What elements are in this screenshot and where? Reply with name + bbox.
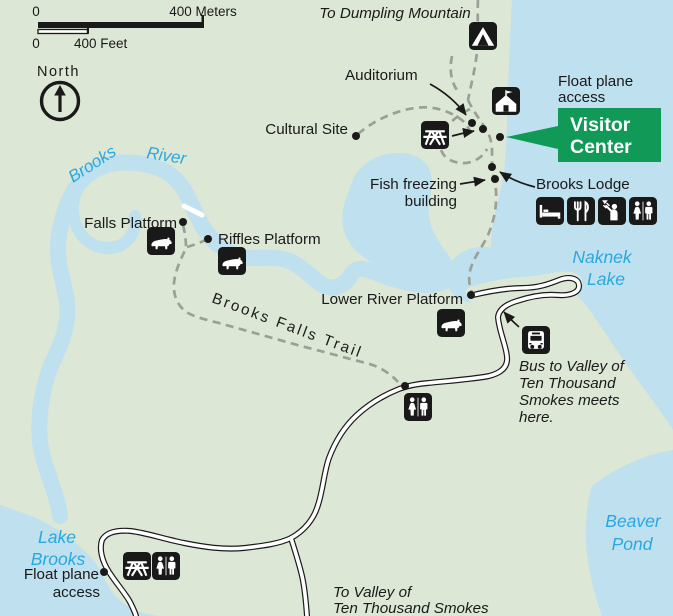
auditorium-label: Auditorium <box>345 67 418 84</box>
scale-feet-zero: 0 <box>32 36 40 51</box>
scale-meters-zero: 0 <box>32 4 40 19</box>
lower-river-platform-label: Lower River Platform <box>321 291 463 308</box>
lake-brooks-label-line2: Brooks <box>31 549 86 569</box>
float-plane-bottom-label-line2: access <box>53 584 101 601</box>
bus-note-line1: Bus to Valley of <box>519 358 626 375</box>
bus-icon <box>522 326 550 354</box>
scale-feet-tick <box>87 24 89 34</box>
lower-river-platform-dot <box>467 291 475 299</box>
campground-tent-icon <box>469 22 497 50</box>
restrooms-icon <box>629 197 657 225</box>
to-valley-label-line2: Ten Thousand Smokes <box>333 600 489 616</box>
picnic-table-icon-lake-brooks <box>123 552 151 580</box>
brooks-lodge-dot <box>488 163 496 171</box>
lake-brooks-label-line1: Lake <box>38 527 76 547</box>
bear-icon-lower-river <box>437 309 465 337</box>
scale-meters-bar <box>38 22 204 28</box>
park-map: Visitor Center To Dumpling Mountain Audi… <box>0 0 673 616</box>
fish-freezing-label-line1: Fish freezing <box>370 176 457 193</box>
scale-feet-bar <box>38 30 88 34</box>
naknek-lake-label-line2: Lake <box>587 269 625 289</box>
picnic-table-icon <box>421 121 449 149</box>
float-plane-top-label-line1: Float plane <box>558 73 633 90</box>
to-dumpling-mountain-label: To Dumpling Mountain <box>319 5 470 22</box>
bus-note-line2: Ten Thousand <box>519 375 616 392</box>
naknek-lake-label-line1: Naknek <box>572 247 633 267</box>
fish-freezing-label-line2: building <box>405 193 457 210</box>
ranger-station-icon <box>492 87 520 115</box>
map-canvas: Visitor Center To Dumpling Mountain Audi… <box>0 0 673 616</box>
bus-note-line4: here. <box>519 409 554 426</box>
bus-note-line3: Smokes meets <box>519 392 620 409</box>
riffles-platform-label: Riffles Platform <box>218 231 321 248</box>
scale-meters-tick <box>202 15 205 28</box>
road-restrooms-dot <box>401 382 409 390</box>
north-label: North <box>37 64 80 80</box>
bear-icon-riffles <box>218 247 246 275</box>
falls-platform-dot <box>179 218 187 226</box>
visitor-center-label-line1: Visitor <box>570 114 631 136</box>
float-plane-dot <box>100 568 108 576</box>
scale-feet-label: 400 Feet <box>74 36 128 51</box>
food-service-icon <box>567 197 595 225</box>
auditorium-dot <box>468 119 476 127</box>
to-valley-label-line1: To Valley of <box>333 584 413 601</box>
fish-freezing-dot <box>491 175 499 183</box>
visitor-center-label-line2: Center <box>570 136 632 158</box>
lodging-bed-icon <box>536 197 564 225</box>
riffles-platform-dot <box>204 235 212 243</box>
cultural-site-dot <box>352 132 360 140</box>
beaver-pond-label-line1: Beaver <box>605 511 662 531</box>
restrooms-icon-road <box>404 393 432 421</box>
visitor-center-dot <box>496 133 504 141</box>
falls-platform-label: Falls Platform <box>84 215 177 232</box>
brooks-lodge-label: Brooks Lodge <box>536 176 630 193</box>
beaver-pond-label-line2: Pond <box>612 534 654 554</box>
float-plane-top-label-line2: access <box>558 89 606 106</box>
picnic-area-dot <box>479 125 487 133</box>
restrooms-icon-lake-brooks <box>152 552 180 580</box>
shower-icon <box>598 197 626 225</box>
cultural-site-label: Cultural Site <box>265 121 348 138</box>
